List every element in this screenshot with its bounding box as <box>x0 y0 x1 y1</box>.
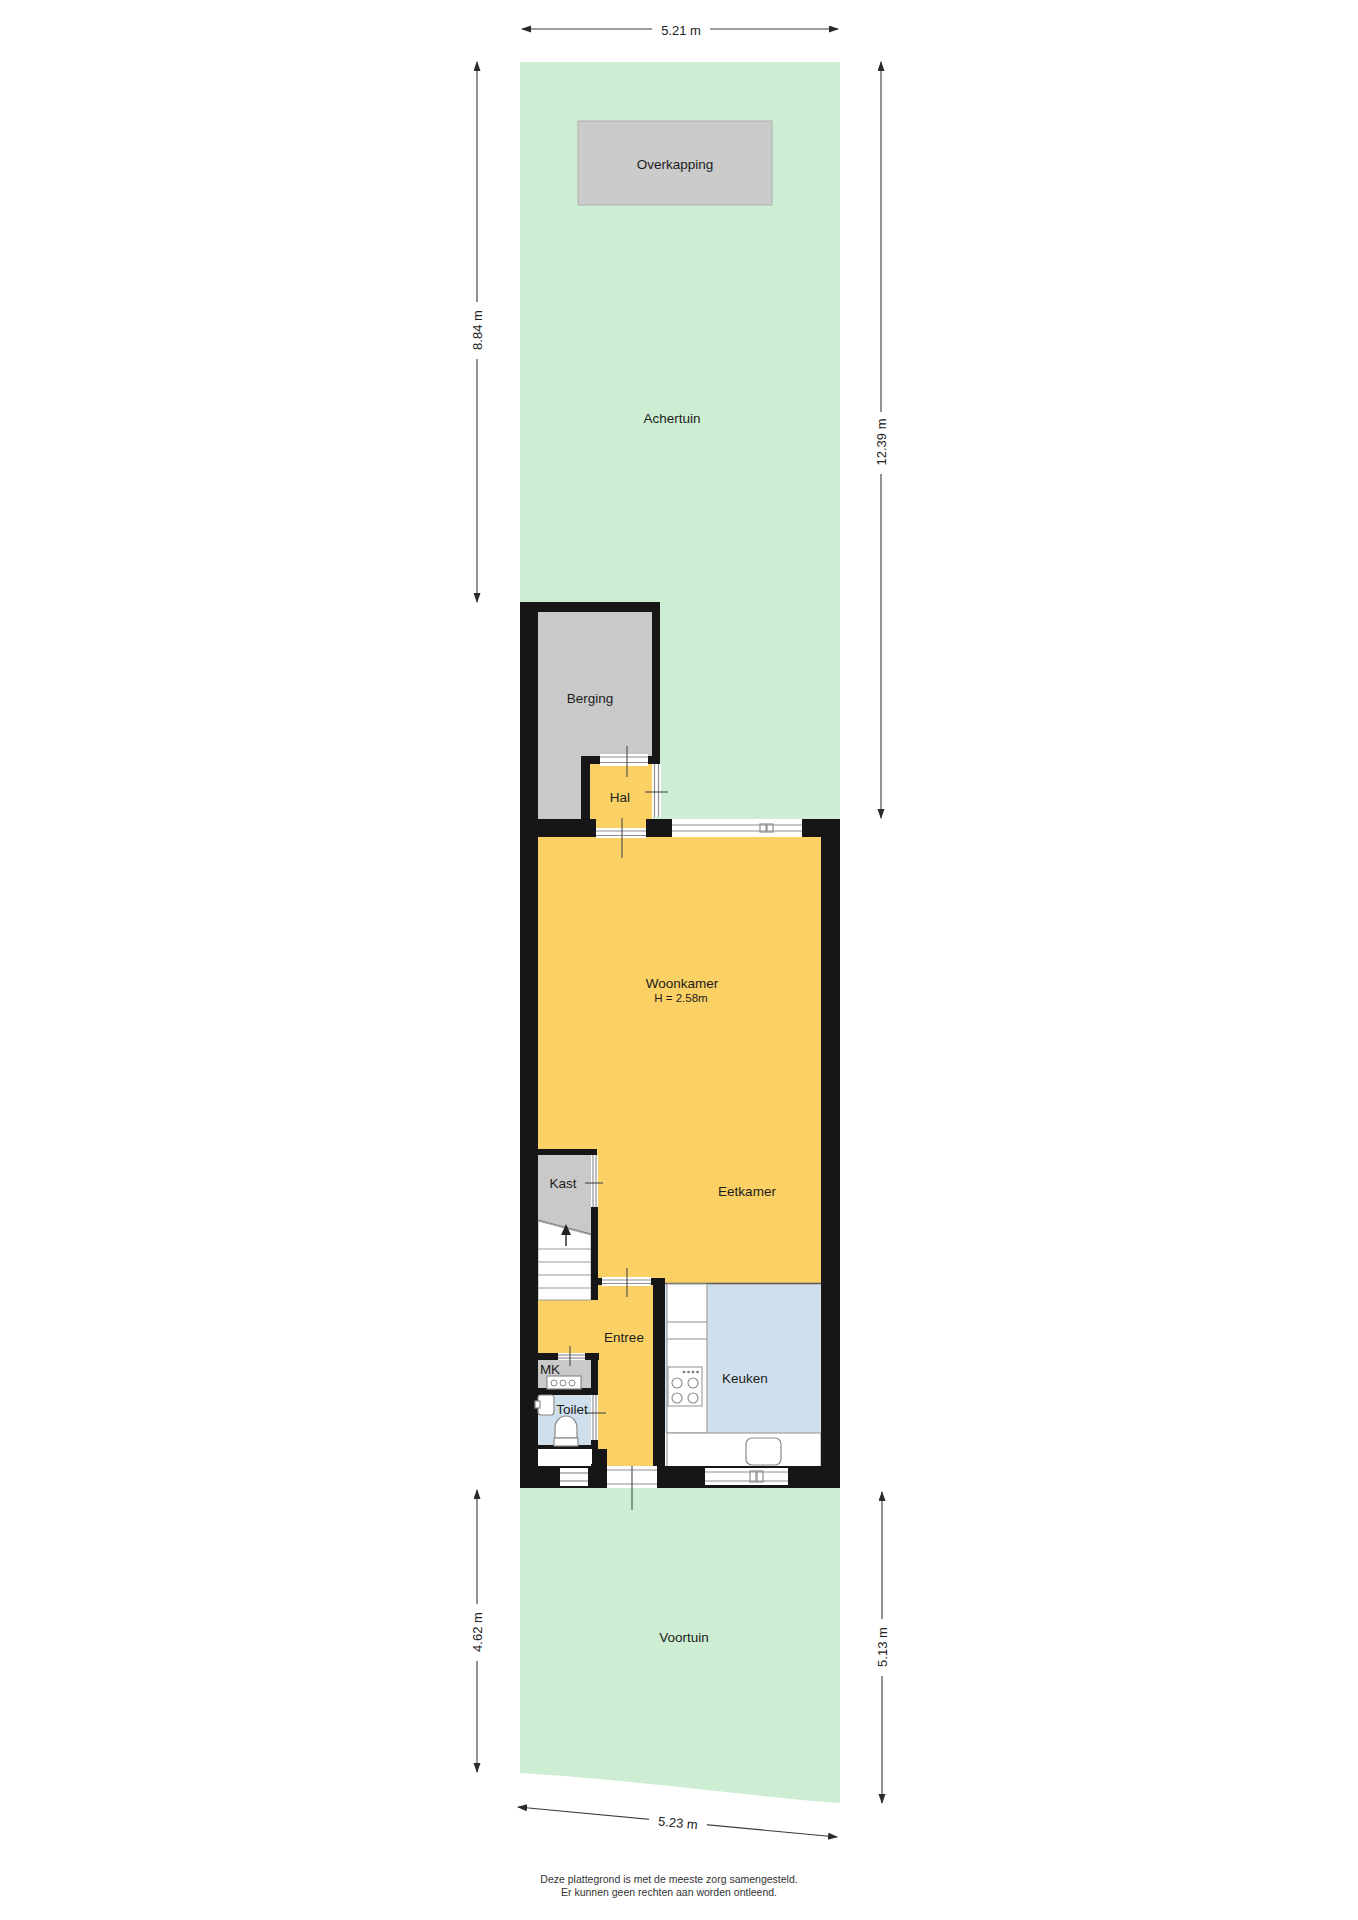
toilet-cistern <box>554 1438 578 1446</box>
toilet-bowl <box>555 1416 577 1438</box>
achtertuin-label: Achertuin <box>643 411 700 426</box>
woonkamer-label: Woonkamer <box>646 976 719 991</box>
mk-label: MK <box>540 1362 560 1377</box>
dim-top-label: 5.21 m <box>661 23 701 38</box>
woonkamer-height-label: H = 2.58m <box>654 992 707 1004</box>
meter-box <box>547 1376 581 1389</box>
floorplan-drawing: 5.21 m 8.84 m 12.39 m 4.62 m 5.13 m 5.23… <box>0 0 1358 1920</box>
woonkamer-window <box>672 821 802 836</box>
berging-hal-door <box>600 754 648 766</box>
hal-label: Hal <box>610 790 630 805</box>
entree-floor-left <box>538 1300 599 1353</box>
counter-column <box>667 1284 707 1433</box>
berging-label: Berging <box>567 691 614 706</box>
dim-bottom-label: 5.23 m <box>657 1814 698 1833</box>
toilet-door <box>591 1395 598 1440</box>
kitchen-sink <box>746 1438 781 1465</box>
toilet-sill <box>540 1449 592 1464</box>
footer-line2: Er kunnen geen rechten aan worden ontlee… <box>561 1886 777 1898</box>
voortuin-label: Voortuin <box>659 1630 709 1645</box>
entree-floor-corridor <box>598 1285 653 1466</box>
toilet-window <box>560 1468 588 1486</box>
toilet-basin-faucet <box>535 1401 540 1408</box>
staircase <box>538 1220 591 1300</box>
dim-frontgarden-right-label: 5.13 m <box>875 1627 890 1667</box>
entree-label: Entree <box>604 1330 644 1345</box>
dim-right-label: 12.39 m <box>874 419 889 466</box>
kast-door <box>591 1155 598 1207</box>
footer-line1: Deze plattegrond is met de meeste zorg s… <box>540 1873 797 1885</box>
overkapping-label: Overkapping <box>637 157 714 172</box>
dim-backgarden-label: 8.84 m <box>470 310 485 350</box>
kast-label: Kast <box>549 1176 576 1191</box>
footer-disclaimer: Deze plattegrond is met de meeste zorg s… <box>540 1873 797 1898</box>
hal-window <box>652 764 661 817</box>
toilet-label: Toilet <box>556 1402 588 1417</box>
hal-woonkamer-door <box>596 828 646 838</box>
keuken-label: Keuken <box>722 1371 768 1386</box>
eetkamer-label: Eetkamer <box>718 1184 776 1199</box>
dim-frontgarden-left-label: 4.62 m <box>470 1612 485 1652</box>
eetkamer-floor <box>597 1149 821 1283</box>
keuken-window <box>705 1468 788 1485</box>
floorplan-page: 5.21 m 8.84 m 12.39 m 4.62 m 5.13 m 5.23… <box>0 0 1358 1920</box>
mk-door <box>558 1353 585 1360</box>
counter-bottom <box>667 1433 821 1470</box>
front-garden-area <box>520 1488 840 1803</box>
